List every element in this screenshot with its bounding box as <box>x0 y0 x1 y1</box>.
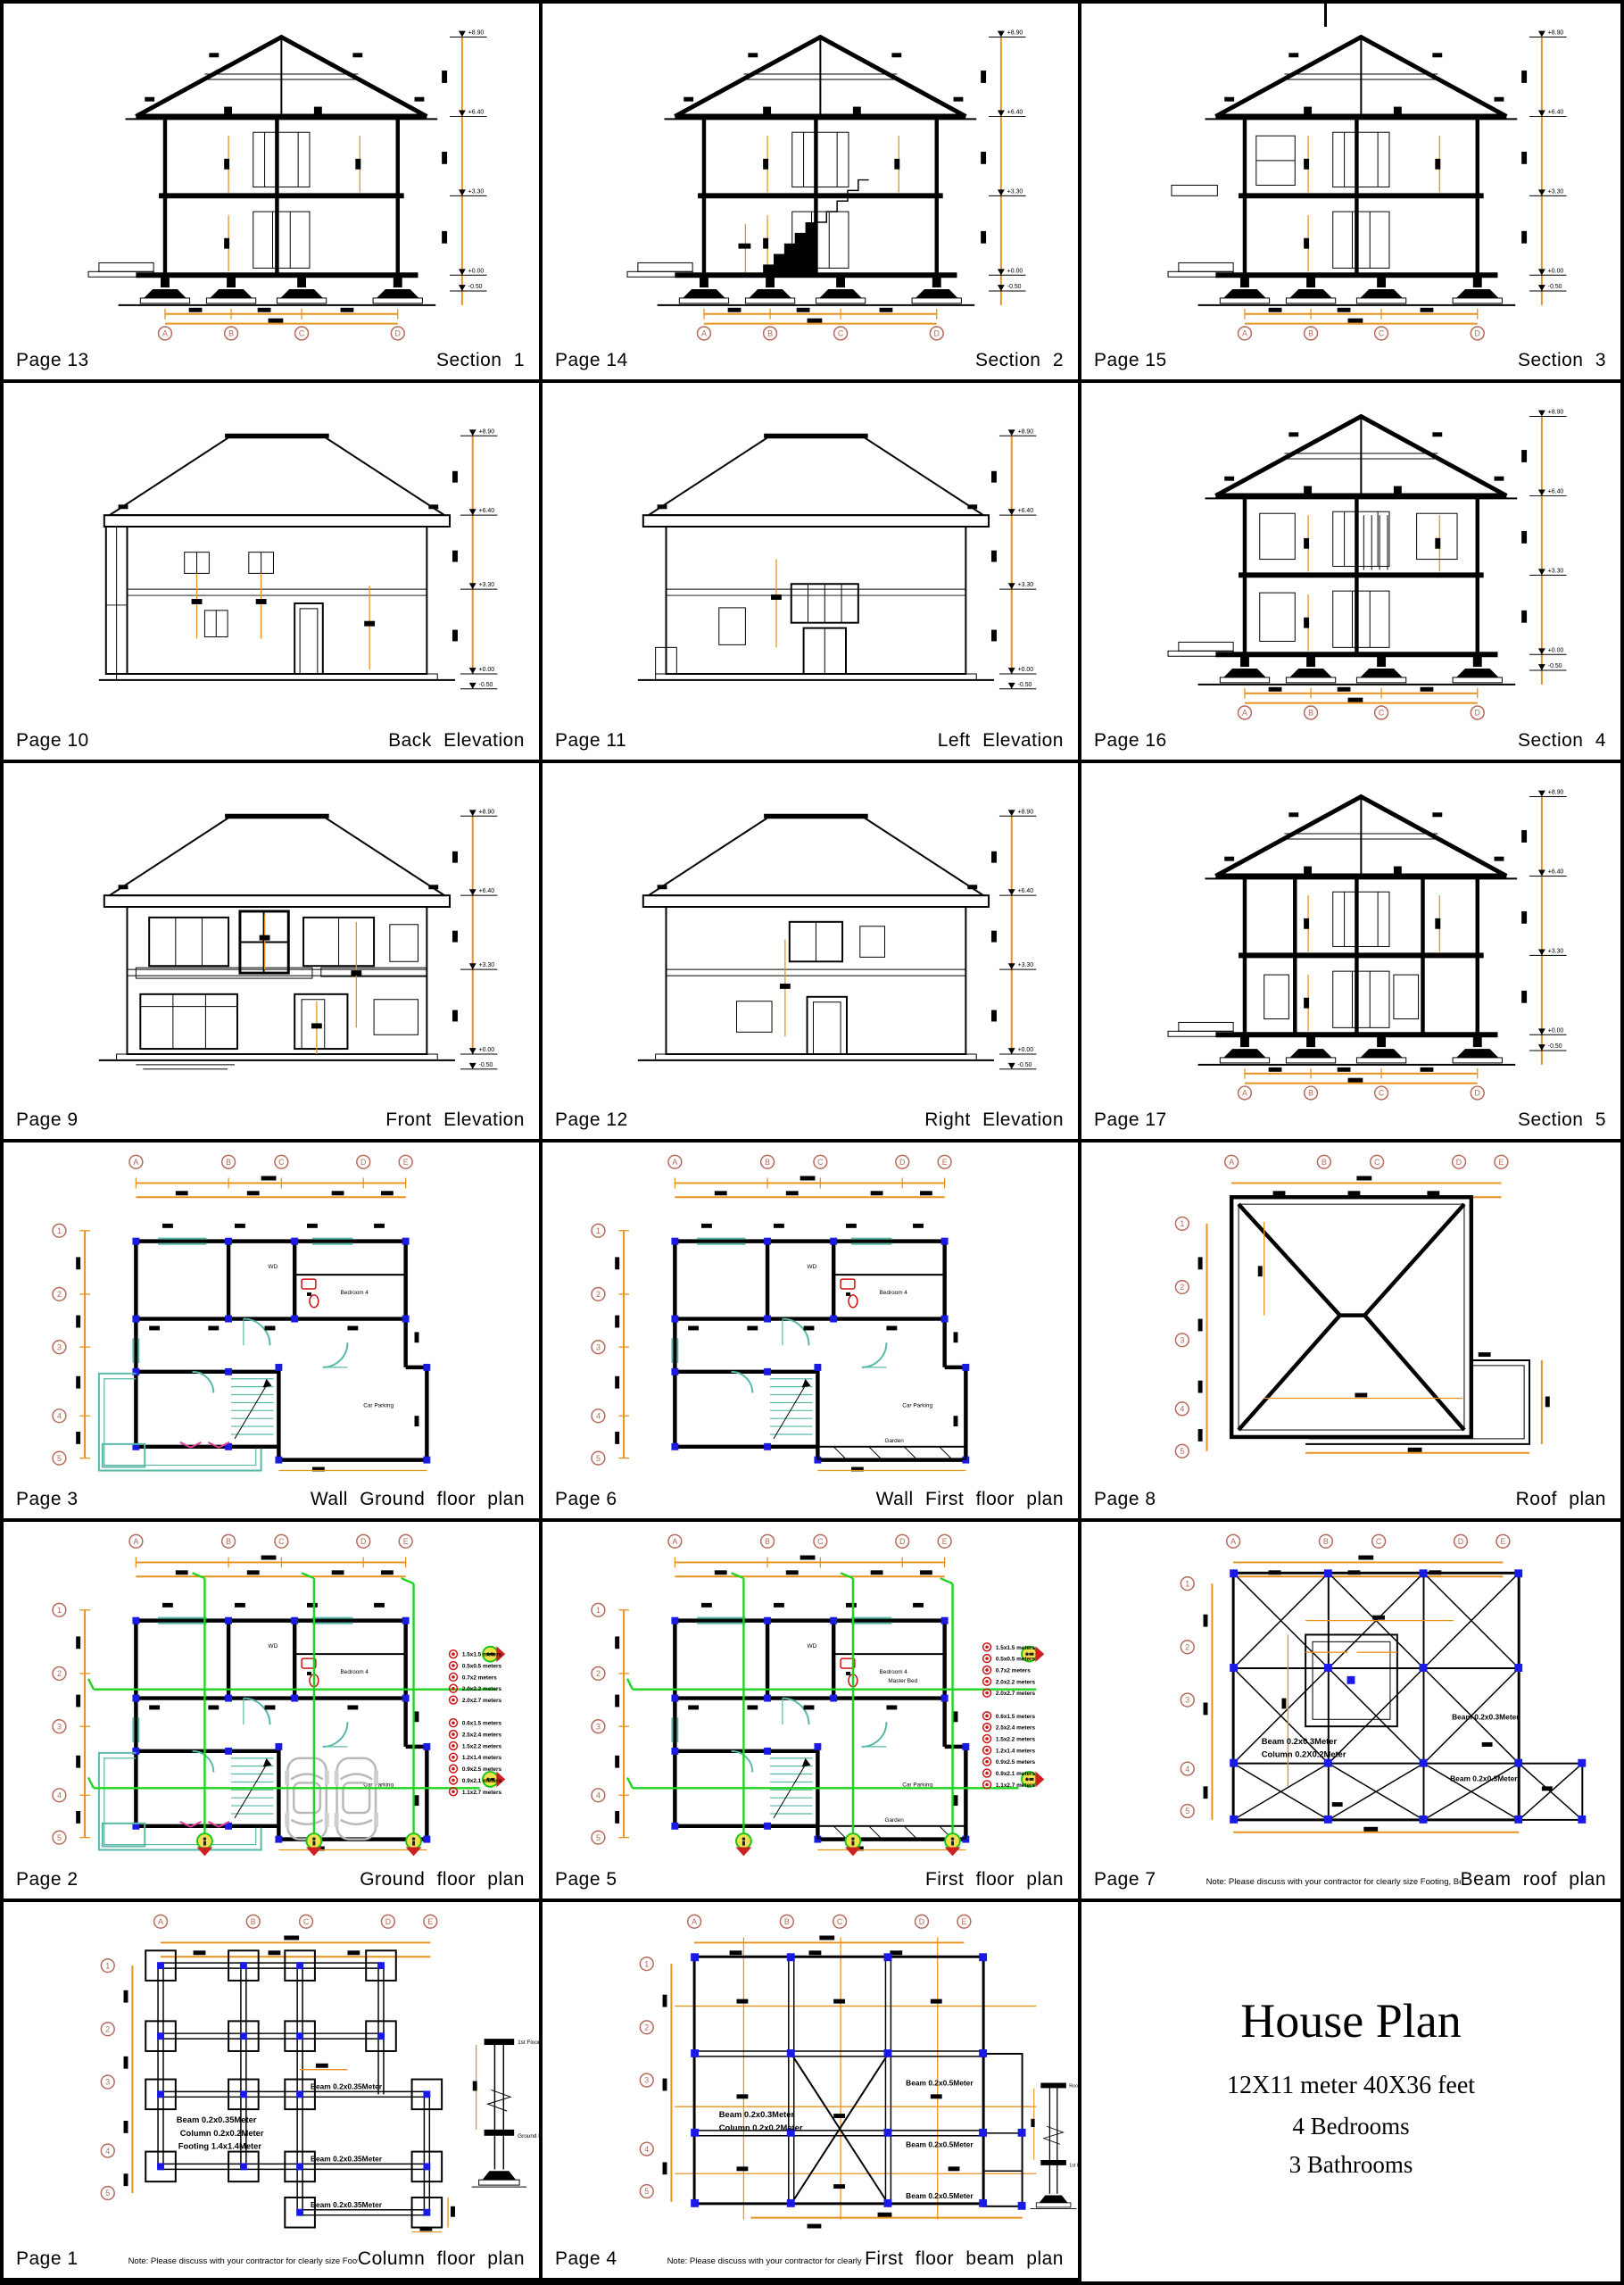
sheet-bedrooms: 4 Bedrooms <box>1292 2113 1409 2140</box>
sheet-bathrooms: 3 Bathrooms <box>1289 2151 1413 2179</box>
front-elevation-drawing <box>4 763 539 1101</box>
section-5-drawing <box>1081 763 1620 1101</box>
caption: Page 14 Section 2 <box>543 344 1078 379</box>
panel-title: Back Elevation <box>388 730 525 752</box>
panel-left-elevation: Page 11 Left Elevation <box>543 383 1081 762</box>
note-label <box>79 1887 360 1890</box>
panel-title: First floor beam plan <box>865 2248 1064 2270</box>
roof-bracing <box>1233 1574 1582 1821</box>
panel-title: Beam roof plan <box>1461 1869 1606 1890</box>
panel-title: Roof plan <box>1516 1489 1606 1510</box>
panel-back-elevation: Page 10 Back Elevation <box>4 383 543 762</box>
svg-text:Footing 1.4x1.4Meter: Footing 1.4x1.4Meter <box>178 2141 262 2150</box>
caption: Page 13 Section 1 <box>4 344 539 379</box>
page-label: Page 1 <box>16 2248 79 2270</box>
column-markers <box>691 1953 1025 2209</box>
note-label <box>617 1507 876 1510</box>
panel-section-2: Page 14 Section 2 <box>543 4 1081 383</box>
caption: Page 12 Right Elevation <box>543 1103 1078 1139</box>
left-elevation-drawing <box>543 383 1078 721</box>
note-label <box>79 1507 311 1510</box>
panel-title: Section 1 <box>436 350 525 371</box>
panel-title: Section 2 <box>975 350 1064 371</box>
caption: Page 8 Roof plan <box>1081 1483 1620 1518</box>
page-label: Page 11 <box>555 730 626 752</box>
foundation-beams <box>158 1963 429 2215</box>
panel-title: Ground floor plan <box>360 1869 525 1890</box>
panel-column-floor-plan: Beam 0.2x0.35Meter Column 0.2x0.2Meter F… <box>4 1902 543 2281</box>
page-label: Page 12 <box>555 1109 628 1131</box>
panel-wall-first-floor-plan: Garden Page 6 Wall First floor plan <box>543 1142 1081 1522</box>
svg-text:Beam 0.2x0.35Meter: Beam 0.2x0.35Meter <box>311 2199 383 2208</box>
note-label: Note: Please discuss with your contracto… <box>79 2256 358 2270</box>
panel-first-floor-beam-plan: Beam 0.2x0.3Meter Column 0.2x0.2Meter Be… <box>543 1902 1081 2281</box>
page-label: Page 10 <box>16 730 89 752</box>
panel-right-elevation: Page 12 Right Elevation <box>543 763 1081 1142</box>
title-block: House Plan 12X11 meter 40X36 feet 4 Bedr… <box>1081 1902 1620 2281</box>
svg-text:Garden: Garden <box>884 1438 904 1444</box>
panel-ground-floor-plan: Page 2 Ground floor plan <box>4 1522 543 1901</box>
footing-squares <box>145 1950 442 2227</box>
note-label <box>1167 368 1518 371</box>
svg-text:Master Bed: Master Bed <box>888 1678 917 1684</box>
note-label <box>1156 1507 1516 1510</box>
note-label <box>1167 1127 1518 1131</box>
page-label: Page 4 <box>555 2248 617 2270</box>
section-1-drawing <box>4 4 539 342</box>
right-elevation-drawing <box>543 763 1078 1101</box>
sheet-size: 12X11 meter 40X36 feet <box>1227 2072 1475 2100</box>
note-label <box>626 748 938 752</box>
back-elevation-drawing <box>4 383 539 721</box>
svg-text:Beam 0.2x0.3Meter: Beam 0.2x0.3Meter <box>1262 1737 1338 1746</box>
house-plan-sheet: Page 13 Section 1 Page 14 Section 2 Page… <box>0 0 1624 2285</box>
svg-text:Beam 0.2x0.35Meter: Beam 0.2x0.35Meter <box>311 2154 383 2163</box>
caption: Page 17 Section 5 <box>1081 1103 1620 1139</box>
page-label: Page 5 <box>555 1869 617 1890</box>
caption: Page 2 Ground floor plan <box>4 1863 539 1899</box>
panel-title: Wall Ground floor plan <box>311 1489 525 1510</box>
ground-floor-plan-drawing <box>4 1522 539 1860</box>
page-label: Page 2 <box>16 1869 79 1890</box>
note-label <box>79 1127 386 1131</box>
panel-roof-plan: Page 8 Roof plan <box>1081 1142 1620 1522</box>
wall-first-floor-plan-drawing: Garden <box>543 1142 1078 1481</box>
beam-roof-plan-drawing: Beam 0.2x0.3Meter Column 0.2X0.2Meter Be… <box>1081 1522 1620 1860</box>
svg-text:Beam 0.2x0.3Meter: Beam 0.2x0.3Meter <box>719 2110 795 2119</box>
caption: Page 3 Wall Ground floor plan <box>4 1483 539 1518</box>
panel-section-1: Page 13 Section 1 <box>4 4 543 383</box>
section-3-drawing <box>1081 4 1620 342</box>
note-label <box>617 1887 925 1890</box>
caption: Page 10 Back Elevation <box>4 724 539 760</box>
panel-title: First floor plan <box>925 1869 1064 1890</box>
svg-text:Beam 0.2x0.3Meter: Beam 0.2x0.3Meter <box>1450 1774 1518 1783</box>
note-label <box>628 368 975 371</box>
svg-text:Beam 0.2x0.3Meter: Beam 0.2x0.3Meter <box>1452 1713 1520 1722</box>
note-label <box>89 368 436 371</box>
caption: Page 1 Note: Please discuss with your co… <box>4 2242 539 2278</box>
svg-text:Roof Floor: Roof Floor <box>1069 2083 1078 2089</box>
section-2-drawing <box>543 4 1078 342</box>
svg-text:1st Floor: 1st Floor <box>1069 2163 1078 2168</box>
caption: Page 9 Front Elevation <box>4 1103 539 1139</box>
panel-front-elevation: Page 9 Front Elevation <box>4 763 543 1142</box>
panel-title: Section 3 <box>1518 350 1606 371</box>
footing-detail: 1st Floor Ground Floor <box>472 2039 539 2187</box>
beam-detail: Roof Floor 1st Floor <box>1031 2082 1078 2208</box>
svg-text:Garden: Garden <box>884 1817 904 1824</box>
panel-beam-roof-plan: Beam 0.2x0.3Meter Column 0.2X0.2Meter Be… <box>1081 1522 1620 1901</box>
svg-text:Beam 0.2x0.5Meter: Beam 0.2x0.5Meter <box>906 2191 974 2200</box>
page-label: Page 8 <box>1094 1489 1156 1510</box>
page-label: Page 14 <box>555 350 628 371</box>
panel-title: Left Elevation <box>938 730 1064 752</box>
svg-text:Ground Floor: Ground Floor <box>518 2132 539 2139</box>
caption: Page 5 First floor plan <box>543 1863 1078 1899</box>
caption: Page 16 Section 4 <box>1081 724 1620 760</box>
note-label: Note: Please discuss with your contracto… <box>1156 1877 1461 1890</box>
column-markers <box>1230 1570 1586 1824</box>
roof-plan-drawing <box>1081 1142 1620 1481</box>
note-label <box>628 1127 925 1131</box>
panel-section-4: Page 16 Section 4 <box>1081 383 1620 762</box>
panel-title: Section 5 <box>1518 1109 1606 1131</box>
page-label: Page 3 <box>16 1489 79 1510</box>
page-label: Page 13 <box>16 350 89 371</box>
wall-ground-floor-plan-drawing <box>4 1142 539 1481</box>
panel-section-3: Page 15 Section 3 <box>1081 4 1620 383</box>
scan-artifact-line <box>1324 4 1327 27</box>
panel-section-5: Page 17 Section 5 <box>1081 763 1620 1142</box>
svg-text:Beam 0.2x0.5Meter: Beam 0.2x0.5Meter <box>906 2078 974 2087</box>
panel-title-block: House Plan 12X11 meter 40X36 feet 4 Bedr… <box>1081 1902 1620 2281</box>
column-markers <box>157 1962 430 2216</box>
panel-first-floor-plan: Garden Master Bed Page 5 First floor pla… <box>543 1522 1081 1901</box>
sheet-title: House Plan <box>1240 1993 1461 2048</box>
first-floor-beam-plan-drawing: Beam 0.2x0.3Meter Column 0.2x0.2Meter Be… <box>543 1902 1078 2240</box>
note-label: Note: Please discuss with your contracto… <box>617 2256 866 2270</box>
panel-title: Right Elevation <box>924 1109 1064 1131</box>
note-label <box>89 748 388 752</box>
caption: Page 4 Note: Please discuss with your co… <box>543 2242 1078 2278</box>
column-floor-plan-drawing: Beam 0.2x0.35Meter Column 0.2x0.2Meter F… <box>4 1902 539 2240</box>
first-floor-plan-drawing: Garden Master Bed <box>543 1522 1078 1860</box>
svg-text:Column 0.2x0.2Meter: Column 0.2x0.2Meter <box>180 2128 264 2137</box>
caption: Page 6 Wall First floor plan <box>543 1483 1078 1518</box>
caption: Page 7 Note: Please discuss with your co… <box>1081 1863 1620 1899</box>
page-label: Page 15 <box>1094 350 1167 371</box>
page-label: Page 9 <box>16 1109 79 1131</box>
page-label: Page 6 <box>555 1489 617 1510</box>
page-label: Page 7 <box>1094 1869 1156 1890</box>
svg-text:Column 0.2X0.2Meter: Column 0.2X0.2Meter <box>1262 1750 1346 1759</box>
panel-title: Front Elevation <box>385 1109 525 1131</box>
page-label: Page 16 <box>1094 730 1167 752</box>
panel-title: Column floor plan <box>358 2248 525 2270</box>
section-4-drawing <box>1081 383 1620 721</box>
panel-title: Section 4 <box>1518 730 1606 752</box>
page-label: Page 17 <box>1094 1109 1167 1131</box>
note-label <box>1167 748 1518 752</box>
panel-title: Wall First floor plan <box>876 1489 1064 1510</box>
svg-text:Beam 0.2x0.35Meter: Beam 0.2x0.35Meter <box>177 2115 257 2124</box>
svg-text:Column 0.2x0.2Meter: Column 0.2x0.2Meter <box>719 2123 803 2132</box>
caption: Page 11 Left Elevation <box>543 724 1078 760</box>
svg-text:Beam 0.2x0.5Meter: Beam 0.2x0.5Meter <box>906 2140 974 2148</box>
svg-text:1st Floor: 1st Floor <box>518 2040 539 2046</box>
svg-text:Beam 0.2x0.35Meter: Beam 0.2x0.35Meter <box>311 2081 383 2090</box>
panel-wall-ground-floor-plan: Page 3 Wall Ground floor plan <box>4 1142 543 1522</box>
caption: Page 15 Section 3 <box>1081 344 1620 379</box>
